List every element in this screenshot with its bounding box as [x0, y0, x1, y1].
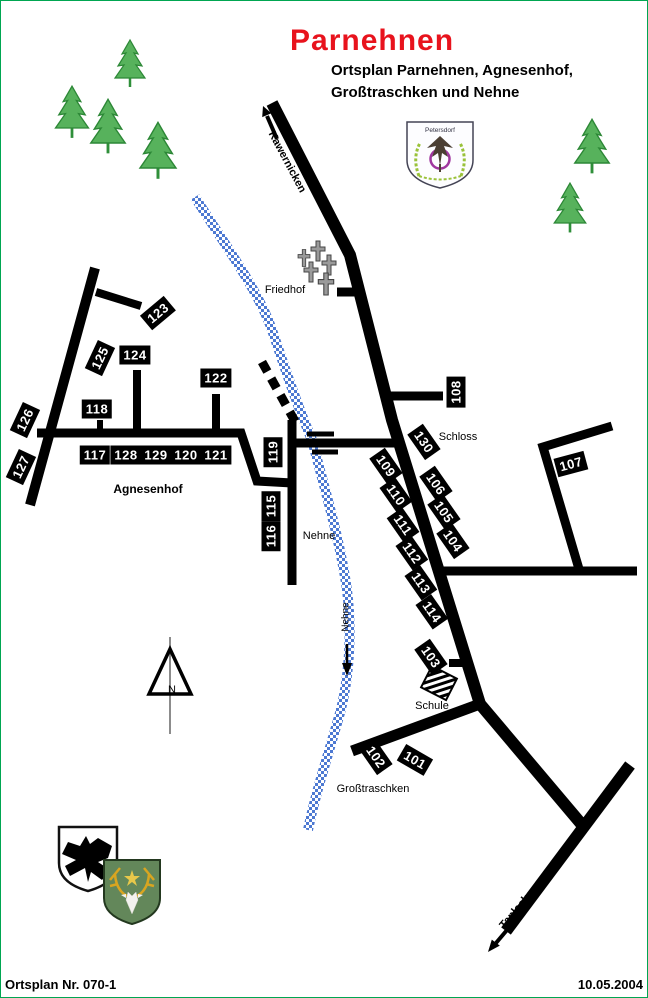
petersdorf-crest: Petersdorf: [407, 122, 473, 188]
north-arrow: N: [149, 637, 191, 734]
road-107: [543, 426, 612, 569]
page-subtitle-line2: Großtraschken und Nehne: [331, 84, 519, 101]
page-title: Parnehnen: [290, 24, 454, 58]
map-artwork: N Petersdorf: [0, 0, 648, 998]
house-number-label: 128: [110, 446, 141, 465]
ortsplan-page: N Petersdorf: [0, 0, 648, 998]
house-number-label: 121: [200, 446, 231, 465]
taplacken-arrow: [488, 930, 507, 952]
plan-number: Ortsplan Nr. 070-1: [5, 977, 116, 992]
north-label: N: [168, 684, 176, 696]
place-name-label: Friedhof: [265, 284, 305, 296]
place-name-label: Agnesenhof: [113, 482, 182, 496]
schule-building: [421, 666, 457, 700]
house-number-label: 120: [170, 446, 201, 465]
page-subtitle-line1: Ortsplan Parnehnen, Agnesenhof,: [331, 62, 573, 79]
house-number-label: 108: [447, 376, 466, 407]
house-number-label: 122: [200, 369, 231, 388]
plan-date: 10.05.2004: [578, 977, 643, 992]
house-number-label: 118: [82, 400, 112, 419]
house-number-label: 115: [262, 491, 281, 521]
deer-crest: [104, 860, 160, 924]
place-name-label: Nehne: [303, 530, 335, 542]
house-number-label: 119: [264, 437, 283, 467]
place-name-label: Schule: [415, 700, 449, 712]
house-number-label: 124: [119, 346, 150, 365]
place-name-label: Schloss: [439, 431, 478, 443]
petersdorf-crest-label: Petersdorf: [425, 127, 455, 134]
place-name-label: Großtraschken: [337, 783, 410, 795]
house-number-label: 116: [262, 521, 281, 551]
house-number-label: 129: [140, 446, 171, 465]
road-name-label: Nehne: [341, 602, 352, 631]
agnesenhof-diagonal-road: [30, 268, 95, 505]
house-number-label: 117: [80, 446, 110, 465]
